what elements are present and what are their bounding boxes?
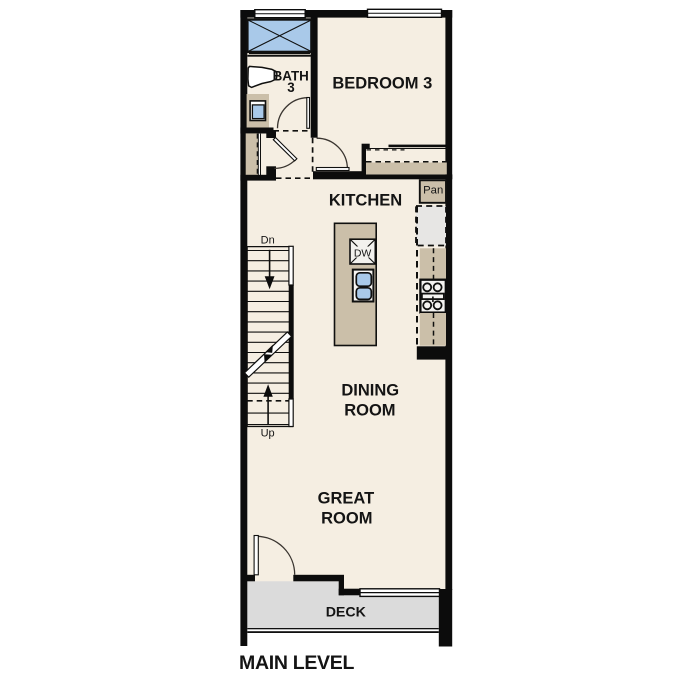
svg-text:BEDROOM 3: BEDROOM 3 [332,74,432,92]
svg-text:Dn: Dn [261,235,275,247]
svg-text:Up: Up [261,428,275,440]
svg-text:Pan: Pan [423,185,443,197]
svg-text:DECK: DECK [326,604,367,620]
svg-text:ROOM: ROOM [344,402,395,420]
svg-text:DW: DW [354,247,372,259]
svg-text:KITCHEN: KITCHEN [329,191,402,209]
svg-text:GREAT: GREAT [318,490,375,508]
svg-text:MAIN LEVEL: MAIN LEVEL [239,652,354,674]
svg-text:3: 3 [287,80,294,95]
svg-text:ROOM: ROOM [321,510,372,528]
svg-text:DINING: DINING [341,382,399,400]
